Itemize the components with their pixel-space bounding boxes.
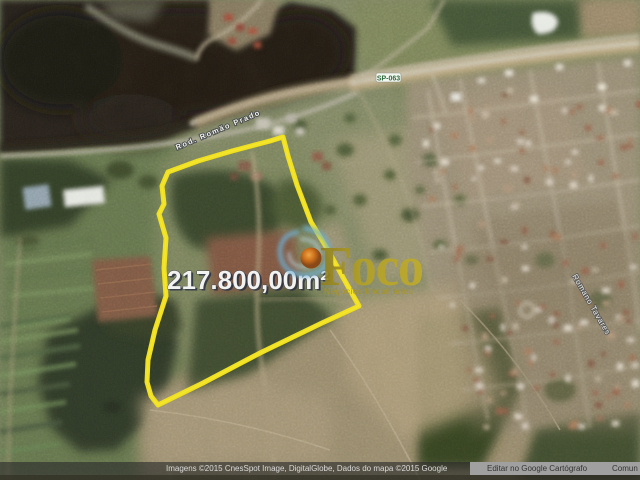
svg-text:Negócios Imobiliários: Negócios Imobiliários <box>324 286 413 296</box>
svg-text:Imagens ©2015 CnesSpot Image,: Imagens ©2015 CnesSpot Image, DigitalGlo… <box>166 464 448 473</box>
svg-text:Comun: Comun <box>612 464 638 473</box>
svg-text:217.800,00m²: 217.800,00m² <box>167 265 329 295</box>
svg-text:Editar no Google Cartógrafo: Editar no Google Cartógrafo <box>487 464 588 473</box>
svg-text:SP-063: SP-063 <box>377 76 400 83</box>
